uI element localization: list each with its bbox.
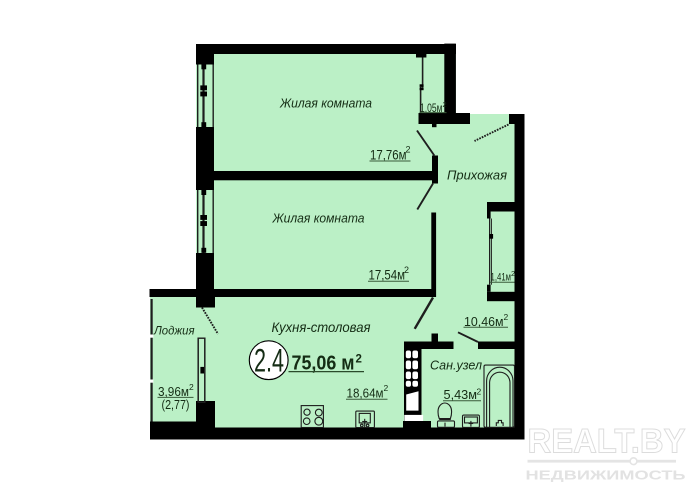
svg-text:НЕДВИЖИМОСТЬ: НЕДВИЖИМОСТЬ — [526, 468, 686, 483]
svg-text:Лоджия: Лоджия — [153, 324, 195, 338]
svg-text:Жилая комната: Жилая комната — [279, 96, 372, 111]
svg-text:2: 2 — [189, 382, 194, 392]
svg-text:2: 2 — [406, 145, 411, 155]
svg-text:2: 2 — [404, 265, 409, 275]
svg-text:2: 2 — [511, 269, 515, 278]
svg-text:Сан.узел: Сан.узел — [430, 358, 482, 373]
svg-text:2: 2 — [356, 354, 362, 366]
svg-text:75,06 м: 75,06 м — [292, 351, 355, 374]
svg-text:3,96м: 3,96м — [158, 385, 189, 399]
svg-text:(2,77): (2,77) — [162, 398, 190, 412]
svg-text:18,64м: 18,64м — [347, 387, 384, 401]
svg-text:10,46м: 10,46м — [464, 314, 504, 329]
svg-text:17,76м: 17,76м — [370, 147, 407, 163]
svg-text:2: 2 — [384, 383, 389, 393]
svg-text:2: 2 — [504, 312, 509, 322]
svg-text:5,43м: 5,43м — [444, 387, 478, 402]
svg-text:2: 2 — [443, 100, 447, 109]
svg-text:Прихожая: Прихожая — [447, 168, 507, 183]
svg-text:REALT.BY: REALT.BY — [528, 422, 686, 460]
svg-text:17,54м: 17,54м — [369, 267, 406, 283]
svg-text:2.4: 2.4 — [254, 343, 284, 379]
svg-text:2: 2 — [477, 387, 482, 397]
svg-text:Кухня-столовая: Кухня-столовая — [272, 320, 371, 335]
svg-text:Жилая комната: Жилая комната — [272, 210, 365, 225]
svg-text:1,41м: 1,41м — [491, 271, 512, 283]
